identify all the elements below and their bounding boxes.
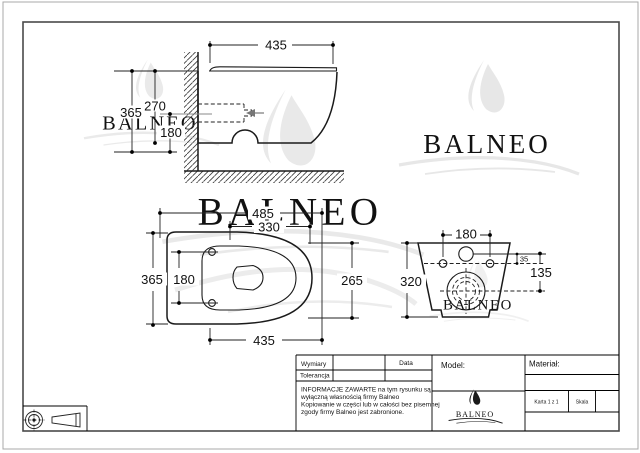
data-label: Data [399, 360, 413, 367]
dim-front-hole-spacing: 180 [455, 227, 477, 242]
floor-hatch [184, 171, 344, 183]
info-line: Kopiowanie w części lub w całości bez pi… [301, 402, 440, 409]
dim-side-upper: 270 [144, 99, 166, 114]
dim-front-inlet-to-drain: 135 [530, 265, 552, 280]
wall-hatch [184, 52, 198, 171]
model-label: Model: [441, 361, 465, 370]
karta-label: Karta 1 z 1 [534, 400, 558, 406]
dim-plan-depth: 365 [141, 272, 163, 287]
info-line: zgody firmy Balneo jest zabronione. [301, 409, 404, 416]
tolerancja-label: Tolerancja [300, 373, 330, 380]
dim-plan-bottom-width: 435 [253, 333, 275, 348]
drawing-page: BALNEO [0, 0, 640, 453]
dim-side-top-width: 435 [265, 38, 287, 53]
dim-plan-hole-spacing: 180 [173, 272, 195, 287]
dim-side-lower: 180 [160, 125, 182, 140]
info-line: wyłączną własnością firmy Balneo [300, 394, 400, 401]
skala-label: Skala [576, 400, 589, 406]
material-label: Materiał: [529, 360, 560, 369]
info-line: INFORMACJE ZAWARTE na tym rysunku są [301, 387, 431, 394]
dim-plan-seat-width: 330 [258, 220, 280, 235]
dim-front-inlet-to-holes: 35 [520, 255, 528, 264]
dim-side-height: 365 [120, 105, 142, 120]
dim-front-height: 320 [400, 274, 422, 289]
technical-drawing-svg: BALNEO [0, 0, 640, 453]
wymiary-label: Wymiary [301, 361, 327, 368]
dim-plan-inner-depth: 265 [341, 273, 363, 288]
